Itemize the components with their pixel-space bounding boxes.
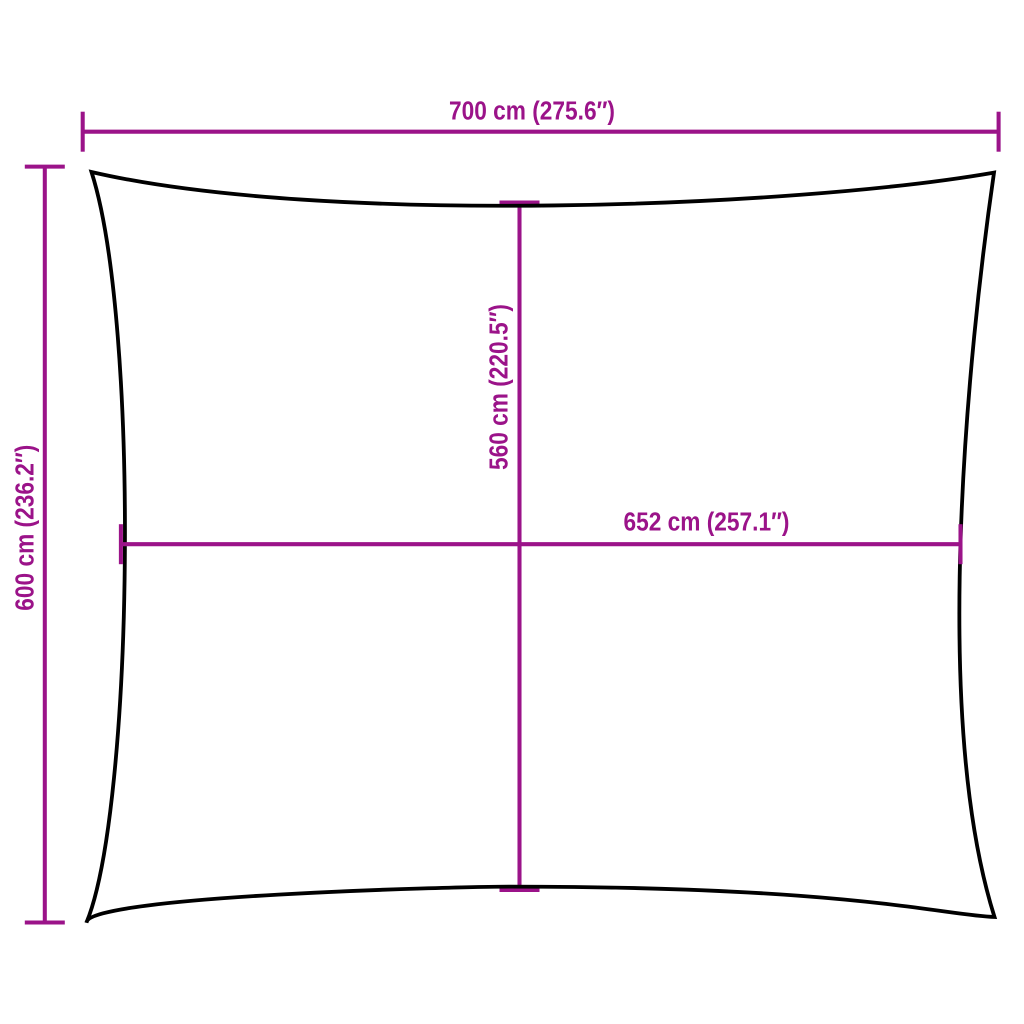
svg-text:560 cm (220.5″): 560 cm (220.5″) [486, 304, 514, 470]
svg-text:652 cm (257.1″): 652 cm (257.1″) [624, 508, 790, 536]
svg-text:700 cm (275.6″): 700 cm (275.6″) [449, 97, 615, 125]
svg-text:600 cm (236.2″): 600 cm (236.2″) [11, 445, 39, 611]
